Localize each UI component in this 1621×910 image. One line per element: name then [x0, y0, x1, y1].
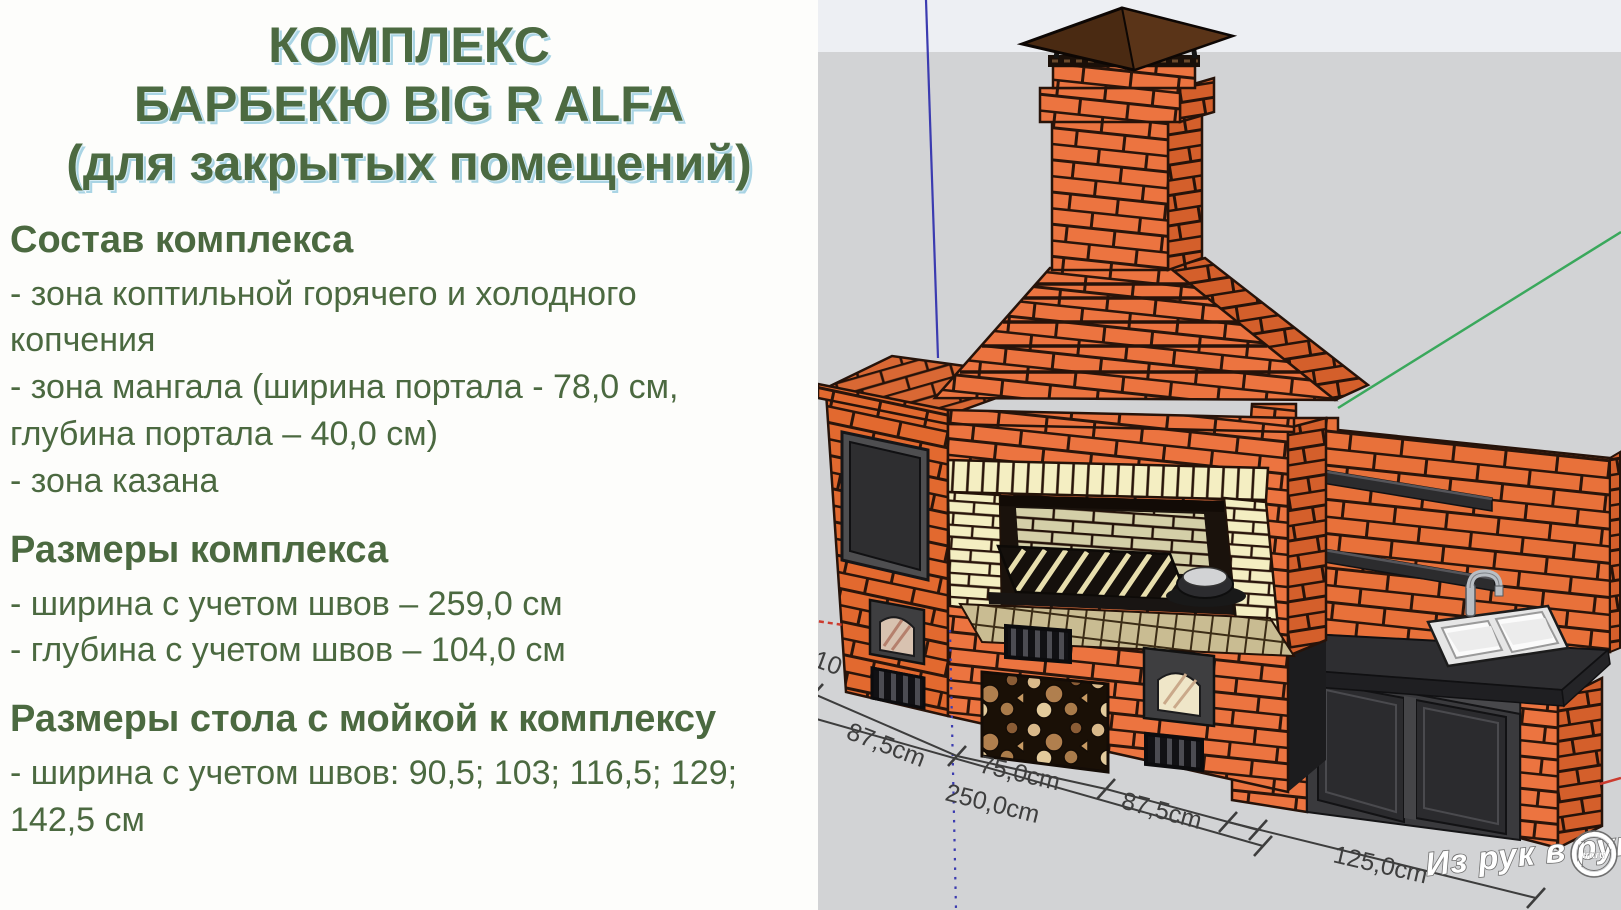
spec-item: - зона мангала (ширина портала - 78,0 см… — [10, 364, 758, 458]
crown-front — [1040, 88, 1180, 122]
spec-item: - зона коптильной горячего и холодного к… — [10, 271, 758, 365]
oven-door-right — [1144, 648, 1214, 726]
vent-grille-right — [1146, 734, 1202, 770]
section-heading: Размеры комплекса — [10, 527, 758, 575]
section-complex-dimensions: Размеры комплекса - ширина с учетом швов… — [10, 527, 758, 674]
spec-content: Состав комплекса - зона коптильной горяч… — [10, 217, 758, 844]
spec-item: - ширина с учетом швов: 90,5; 103; 116,5… — [10, 750, 758, 844]
spec-item: - зона казана — [10, 458, 758, 505]
section-table-dimensions: Размеры стола с мойкой к комплексу - шир… — [10, 696, 758, 843]
right-side-face — [1288, 418, 1326, 656]
firebox — [948, 460, 1294, 656]
title-line-3: (для закрытых помещений) — [0, 134, 818, 193]
watermark-logo-text: irr.ru — [1583, 850, 1606, 861]
table-right-brick-pillar — [1520, 696, 1558, 848]
cabinet-door-right — [1416, 700, 1506, 834]
smoker-chamber-door — [842, 432, 928, 580]
barbecue-3d-render: 10 87,5cm 75,0cm 250,0cm 87,5cm 125,0cm … — [818, 0, 1621, 910]
section-composition: Состав комплекса - зона коптильной горяч… — [10, 217, 758, 505]
oven-door-left — [870, 600, 924, 664]
title-line-1: КОМПЛЕКС — [0, 16, 818, 75]
page-title: КОМПЛЕКС БАРБЕКЮ BIG R ALFA (для закрыты… — [0, 16, 818, 193]
title-line-2: БАРБЕКЮ BIG R ALFA — [0, 75, 818, 134]
stack-front — [1052, 100, 1168, 270]
render-background-top — [818, 0, 1621, 52]
slide: КОМПЛЕКС БАРБЕКЮ BIG R ALFA (для закрыты… — [0, 0, 1621, 910]
watermark-logo: irr.ru — [1571, 831, 1617, 877]
text-panel: КОМПЛЕКС БАРБЕКЮ BIG R ALFA (для закрыты… — [0, 0, 818, 910]
section-heading: Размеры стола с мойкой к комплексу — [10, 696, 758, 744]
spec-item: - ширина с учетом швов – 259,0 см — [10, 581, 758, 628]
section-heading: Состав комплекса — [10, 217, 758, 265]
vent-grille-center — [1006, 626, 1070, 662]
spec-item: - глубина с учетом швов – 104,0 см — [10, 627, 758, 674]
